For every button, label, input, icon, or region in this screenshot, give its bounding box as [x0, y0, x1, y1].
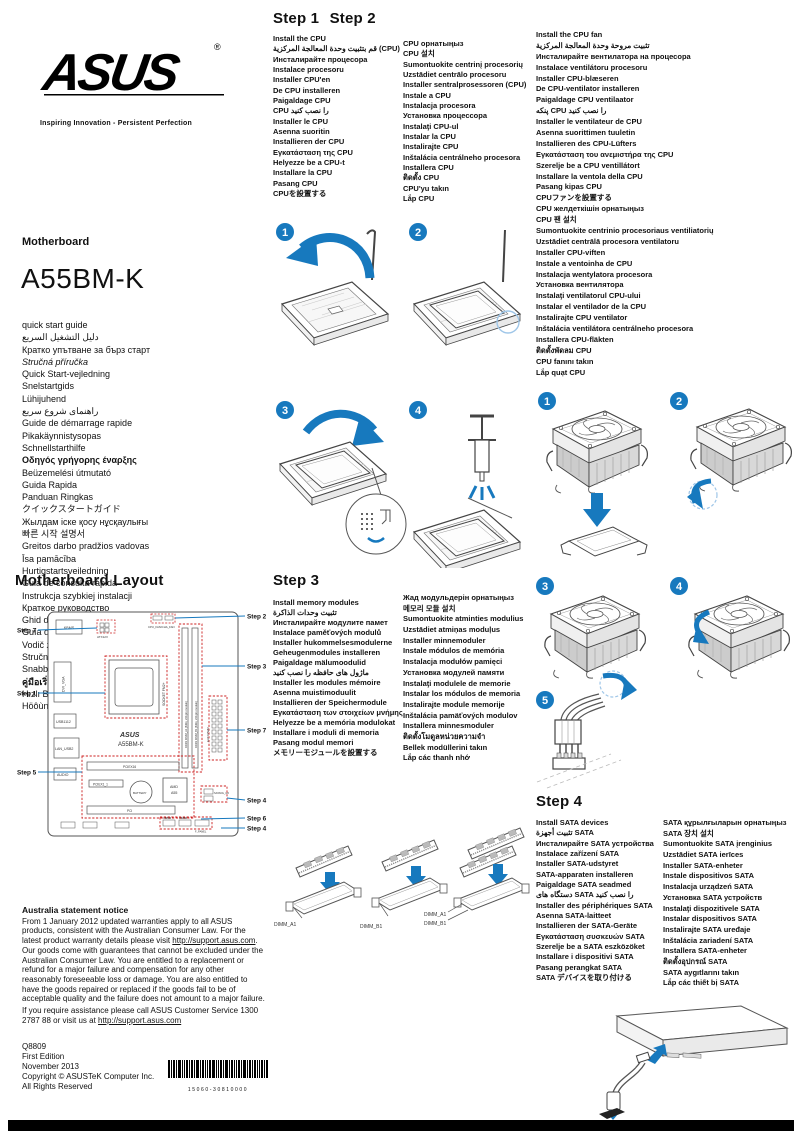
text-line: Asenna suorittimen tuuletin: [536, 128, 714, 139]
text-line: Установка вентилятора: [536, 280, 714, 291]
text-line: Asenna muistimoduulit: [273, 688, 403, 698]
text-line: CPU желдеткішін орнатыңыз: [536, 204, 714, 215]
svg-text:SATA6G_1/2: SATA6G_1/2: [214, 791, 229, 795]
text-line: Pasang perangkat SATA: [536, 963, 654, 973]
sata-install-list-1: Install SATA devicesتثبيت أجهزة SATAИнст…: [536, 818, 654, 984]
text-line: Schnellstarthilfe: [22, 442, 155, 454]
svg-text:SOCKET FM2+: SOCKET FM2+: [162, 682, 166, 706]
text-line: Lắp CPU: [403, 194, 526, 204]
text-line: Installieren der SATA-Geräte: [536, 921, 654, 931]
text-line: Installare la ventola della CPU: [536, 172, 714, 183]
cpu-install-list-1: Install the CPUقم بتثبيت وحدة المعالجة ا…: [273, 34, 400, 200]
edition: First Edition: [22, 1052, 154, 1062]
mb-callout: Step 7: [17, 628, 37, 635]
dimm-label: DIMM_B1: [360, 924, 382, 930]
text-line: Inštalácia centrálneho procesora: [403, 153, 526, 163]
doc-number: Q8809: [22, 1042, 154, 1052]
dimm-label: DIMM_B1: [424, 921, 446, 927]
edition-block: Q8809 First Edition November 2013 Copyri…: [22, 1042, 154, 1092]
text-line: ติดตั้ง CPU: [403, 173, 526, 183]
text-line: Кратко упътване за бърз старт: [22, 344, 155, 356]
text-line: Stručná příručka: [22, 356, 155, 368]
text-line: تثبيت وحدات الذاكرة: [273, 608, 403, 618]
text-line: Installieren des CPU-Lüfters: [536, 139, 714, 150]
barcode-number: 15060-30810000: [168, 1087, 268, 1093]
text-line: Instale dispositivos SATA: [663, 871, 786, 882]
text-line: Installer le ventilateur de CPU: [536, 117, 714, 128]
svg-text:DDR3 DIMM_A1 (64bit, 240-pin m: DDR3 DIMM_A1 (64bit, 240-pin module): [184, 701, 188, 748]
text-line: Lắp các thanh nhớ: [403, 753, 523, 764]
text-line: CPU 설치: [403, 49, 526, 59]
text-line: Paigaldage mälumoodulid: [273, 658, 403, 668]
text-line: Жылдам іске қосу нұсқаулығы: [22, 516, 155, 528]
sata-install-diagram: [555, 1002, 800, 1125]
text-line: Installer CPU-viften: [536, 248, 714, 259]
text-line: Install memory modules: [273, 598, 403, 608]
support-link: http://support.asus.com: [98, 1016, 181, 1025]
text-line: Uzstādiet SATA ierīces: [663, 850, 786, 861]
text-line: 메모리 모듈 설치: [403, 604, 523, 615]
support-link: http://support.asus.com: [172, 936, 255, 945]
text-line: SATA aygıtlarını takın: [663, 968, 786, 979]
text-line: Installare i moduli di memoria: [273, 728, 403, 738]
svg-text:ASUS: ASUS: [37, 44, 184, 102]
svg-text:USB56: USB56: [179, 816, 188, 820]
text-line: Paigaldage SATA seadmed: [536, 880, 654, 890]
text-line: CPUを設置する: [273, 189, 400, 199]
mb-callout: Step 6: [247, 816, 267, 823]
svg-text:AUDIO: AUDIO: [57, 773, 69, 777]
text-line: Installer CPU-blæseren: [536, 74, 714, 85]
text-line: ماژول های حافظه را نصب کنید: [273, 668, 403, 678]
bottom-bar: [8, 1120, 794, 1131]
text-line: Sumontuokite SATA įrenginius: [663, 839, 786, 850]
text-line: Paigaldage CPU ventilaator: [536, 95, 714, 106]
text-line: Inštalácia ventilátora centrálneho proce…: [536, 324, 714, 335]
text-line: メモリーモジュールを設置する: [273, 748, 403, 758]
text-line: Installer SATA-udstyret: [536, 859, 654, 869]
svg-text:A55BM-K: A55BM-K: [118, 742, 144, 748]
text-line: Installare la CPU: [273, 168, 400, 178]
svg-text:A55: A55: [171, 791, 177, 795]
mb-callout: Step 3: [247, 664, 267, 671]
text-line: Установка SATA устройств: [663, 893, 786, 904]
step3-heading: Step 3: [273, 572, 319, 589]
text-line: دستگاه های SATA را نصب کنید: [536, 890, 654, 900]
svg-text:PCIEX16: PCIEX16: [123, 765, 136, 769]
memory-install-list-2: Жад модульдерін орнатыңыз메모리 모듈 설치Sumont…: [403, 593, 523, 764]
text-line: Guide de démarrage rapide: [22, 417, 155, 429]
cpu-fan-diagram-b: 3 4 5: [533, 572, 800, 795]
text-line: Instalacja procesora: [403, 101, 526, 111]
fan-step-badge: 5: [542, 695, 548, 707]
text-line: ติดตั้งอุปกรณ์ SATA: [663, 957, 786, 968]
text-line: Panduan Ringkas: [22, 491, 155, 503]
text-line: Uzstādiet centrālā procesora ventilatoru: [536, 237, 714, 248]
text-line: Install the CPU fan: [536, 30, 714, 41]
text-line: Instalar dispositivos SATA: [663, 914, 786, 925]
australia-notice-body2: If you require assistance please call AS…: [22, 1006, 265, 1025]
text-line: ติดตั้งโมดูลหน่วยความจำ: [403, 732, 523, 743]
cpu-install-list-2: CPU орнатыңызCPU 설치Sumontuokite centrinį…: [403, 39, 526, 205]
cpu-step-badge: 4: [415, 405, 422, 417]
text-line: Instalace paměťových modulů: [273, 628, 403, 638]
text-line: Installare i dispositivi SATA: [536, 952, 654, 962]
text-line: Installieren der CPU: [273, 137, 400, 147]
cpu-install-diagram: 1 2 3: [272, 218, 528, 573]
text-line: Инсталирайте вентилатора на процесора: [536, 52, 714, 63]
svg-text:DVI_VGA: DVI_VGA: [62, 676, 66, 692]
svg-text:ASUS: ASUS: [119, 732, 140, 739]
text-line: Helyezze be a memória modulokat: [273, 718, 403, 728]
svg-text:PCI: PCI: [127, 809, 132, 813]
text-line: ติดตั้งพัดลม CPU: [536, 346, 714, 357]
retention-bracket: [561, 527, 647, 556]
text-line: Pasang modul memori: [273, 738, 403, 748]
text-line: Instalacja modułów pamięci: [403, 657, 523, 668]
text-line: Installer minnemoduler: [403, 636, 523, 647]
text-line: Instalar el ventilador de la CPU: [536, 302, 714, 313]
text-line: SATA 장치 설치: [663, 829, 786, 840]
text-line: Helyezze be a CPU-t: [273, 158, 400, 168]
cpu-fan-diagram-a: 1 2: [533, 385, 800, 576]
text-line: Bellek modüllerini takın: [403, 743, 523, 754]
text-line: CPU'yu takın: [403, 184, 526, 194]
text-line: Szerelje be a CPU ventillátort: [536, 161, 714, 172]
svg-text:LAN_USB2: LAN_USB2: [55, 747, 73, 751]
text-line: تثبيت أجهزة SATA: [536, 828, 654, 838]
thermal-paste-syringe: [468, 416, 496, 500]
text-line: Uzstādiet centrālo procesoru: [403, 70, 526, 80]
text-line: Installer hukommelsesmodulerne: [273, 638, 403, 648]
text-line: Установка модулей памяти: [403, 668, 523, 679]
text-line: تثبيت مروحة وحدة المعالجة المركزية: [536, 41, 714, 52]
text-line: Instalar la CPU: [403, 132, 526, 142]
text-line: Instalacja wentylatora procesora: [536, 270, 714, 281]
text-line: Жад модульдерін орнатыңыз: [403, 593, 523, 604]
dimm-label: DIMM_A1: [424, 912, 446, 918]
text-line: Lühijuhend: [22, 393, 155, 405]
text-line: Installera SATA-enheter: [663, 946, 786, 957]
svg-text:EATXPWR: EATXPWR: [206, 727, 210, 742]
text-line: Uzstādiet atmiņas moduļus: [403, 625, 523, 636]
text-line: Εγκατάσταση του ανεμιστήρα της CPU: [536, 150, 714, 161]
step12-heading: Step 1 Step 2: [273, 10, 376, 27]
cpu-fan-install-list: Install the CPU fanتثبيت مروحة وحدة المع…: [536, 30, 714, 379]
text-line: قم بتثبيت وحدة المعالجة المركزية (CPU): [273, 44, 400, 54]
text-line: Installer des périphériques SATA: [536, 901, 654, 911]
svg-text:CPU_FAN/CHA_FAN: CPU_FAN/CHA_FAN: [148, 625, 175, 629]
text-line: Installieren der Speichermodule: [273, 698, 403, 708]
model-name: A55BM-K: [21, 263, 144, 295]
text-line: Īsa pamācība: [22, 553, 155, 565]
text-line: راهنمای شروع سریع: [22, 405, 155, 417]
svg-text:F_PANEL: F_PANEL: [195, 830, 207, 834]
text-line: Instalace ventilátoru procesoru: [536, 63, 714, 74]
step2-label: Step 2: [330, 10, 376, 27]
text-line: Instalirajte CPU ventilator: [536, 313, 714, 324]
asus-logo: ASUS ®: [36, 34, 232, 111]
text-line: CPUファンを設置する: [536, 193, 714, 204]
text-line: Εγκατάσταση συσκευών SATA: [536, 932, 654, 942]
quick-start-guide-page: ASUS ® Inspiring Innovation - Persistent…: [0, 0, 802, 1134]
text-line: CPU fanını takın: [536, 357, 714, 368]
text-line: Installer le CPU: [273, 117, 400, 127]
text-line: Geheugenmodules installeren: [273, 648, 403, 658]
text-line: Instalace procesoru: [273, 65, 400, 75]
text-line: Instalacja urządzeń SATA: [663, 882, 786, 893]
text-line: CPU орнатыңыз: [403, 39, 526, 49]
mb-callout: Step 4: [247, 826, 267, 833]
text-line: Asenna SATA-laitteet: [536, 911, 654, 921]
text-line: پنکه CPU را نصب کنید: [536, 106, 714, 117]
mb-callout: Step 4: [247, 798, 267, 805]
fan-connector: [537, 694, 621, 788]
text-line: Inštalácia pamäťových modulov: [403, 711, 523, 722]
mb-callout: Step 5: [17, 770, 37, 777]
australia-notice-body: From 1 January 2012 updated warranties a…: [22, 917, 265, 1004]
fan-step-badge: 1: [544, 396, 550, 408]
text-line: quick start guide: [22, 319, 155, 331]
text-line: Инсталирайте процесора: [273, 55, 400, 65]
text-line: Inštalácia zariadení SATA: [663, 936, 786, 947]
svg-text:USB1112: USB1112: [56, 720, 71, 724]
svg-text:BATTERY: BATTERY: [133, 791, 147, 795]
cpu-step-badge: 1: [282, 227, 288, 239]
text-line: CPU را نصب كنيد: [273, 106, 400, 116]
fan-step-badge: 2: [676, 396, 682, 408]
text-line: Instalar los módulos de memoria: [403, 689, 523, 700]
text-line: Instalaţi ventilatorul CPU-ului: [536, 291, 714, 302]
text-line: Pikakäynnistysopas: [22, 430, 155, 442]
text-line: Quick Start-vejledning: [22, 368, 155, 380]
memory-install-diagram: DIMM_A1 DIMM_B1 DIMM_A1 DIMM_B1: [272, 806, 530, 961]
text-line: Installera CPU-fläkten: [536, 335, 714, 346]
text-line: Instale a CPU: [403, 91, 526, 101]
text-line: Installer SATA-enheter: [663, 861, 786, 872]
text-line: Paigaldage CPU: [273, 96, 400, 106]
cpu-step-badge: 2: [415, 227, 421, 239]
australia-notice: Australia statement notice From 1 Januar…: [22, 906, 265, 1025]
dimm-label: DIMM_A1: [274, 922, 296, 928]
step4-heading: Step 4: [536, 793, 582, 810]
text-line: Sumontuokite centrinio procesoriaus vent…: [536, 226, 714, 237]
text-line: Install SATA devices: [536, 818, 654, 828]
text-line: Instalaţi modulele de memorie: [403, 679, 523, 690]
mb-callout: Step 1: [17, 691, 37, 698]
text-line: دليل التشغيل السريع: [22, 331, 155, 343]
brand-tagline: Inspiring Innovation - Persistent Perfec…: [40, 120, 192, 127]
text-line: クイックスタートガイド: [22, 503, 155, 515]
barcode: 15060-30810000: [168, 1060, 268, 1093]
step1-label: Step 1: [273, 10, 319, 27]
text-line: SATA құрылғыларын орнатыңыз: [663, 818, 786, 829]
text-line: Lắp quạt CPU: [536, 368, 714, 379]
text-line: Installer les modules mémoire: [273, 678, 403, 688]
text-line: Beüzemelési útmutató: [22, 467, 155, 479]
text-line: Installer CPU'en: [273, 75, 400, 85]
text-line: Greitos darbo pradžios vadovas: [22, 540, 155, 552]
text-line: Guida Rapida: [22, 479, 155, 491]
text-line: Asenna suoritin: [273, 127, 400, 137]
svg-text:USB34: USB34: [163, 816, 172, 820]
svg-text:AMD: AMD: [170, 785, 178, 789]
text-line: Инсталирайте модулите памет: [273, 618, 403, 628]
text-line: 빠른 시작 설명서: [22, 528, 155, 540]
text-line: Instalaţi dispozitivele SATA: [663, 904, 786, 915]
text-line: CPU 팬 설치: [536, 215, 714, 226]
mb-callout: Step 7: [247, 728, 267, 735]
text-line: Lắp các thiết bị SATA: [663, 978, 786, 989]
text-line: Инсталирайте SATA устройства: [536, 839, 654, 849]
fan-step-badge: 4: [676, 581, 683, 593]
text-line: Szerelje be a SATA eszközöket: [536, 942, 654, 952]
text-line: Snelstartgids: [22, 380, 155, 392]
sata-install-list-2: SATA құрылғыларын орнатыңызSATA 장치 설치Sum…: [663, 818, 786, 989]
product-type-label: Motherboard: [22, 236, 89, 248]
text-line: Instalace zařízení SATA: [536, 849, 654, 859]
text-line: Οδηγός γρήγορης έναρξης: [22, 454, 155, 466]
text-line: Instalirajte CPU: [403, 142, 526, 152]
australia-notice-heading: Australia statement notice: [22, 906, 265, 916]
fan-step-badge: 3: [542, 581, 548, 593]
text-line: Pasang CPU: [273, 179, 400, 189]
text-line: Εγκατάσταση της CPU: [273, 148, 400, 158]
mb-callout: Step 2: [247, 614, 267, 621]
memory-install-list-1: Install memory modulesتثبيت وحدات الذاكر…: [273, 598, 403, 758]
text-line: Instale módulos de memória: [403, 646, 523, 657]
text-line: Sumontuokite atminties modulius: [403, 614, 523, 625]
motherboard-diagram: KBMS DVI_VGA USB1112 LAN_USB2 AUDIO ATX1…: [15, 598, 270, 855]
text-line: De CPU installeren: [273, 86, 400, 96]
text-line: De CPU-ventilator installeren: [536, 84, 714, 95]
svg-text:PCIEX1_1: PCIEX1_1: [93, 783, 108, 787]
text-line: Instalirajte module memorije: [403, 700, 523, 711]
text-line: Εγκατάσταση των στοιχείων μνήμης: [273, 708, 403, 718]
rights: All Rights Reserved: [22, 1082, 154, 1092]
text-line: Instalaţi CPU-ul: [403, 122, 526, 132]
text-line: SATA-apparaten installeren: [536, 870, 654, 880]
motherboard-layout-heading: Motherboard Layout: [15, 572, 164, 589]
text-line: Instale a ventoinha de CPU: [536, 259, 714, 270]
cpu-step-badge: 3: [282, 405, 288, 417]
text-line: Sumontuokite centrinį procesorių: [403, 60, 526, 70]
text-line: Установка процессора: [403, 111, 526, 121]
copyright: Copyright © ASUSTeK Computer Inc.: [22, 1072, 154, 1082]
text-line: SATA デバイスを取り付ける: [536, 973, 654, 983]
svg-text:®: ®: [214, 42, 221, 52]
svg-text:DDR3 DIMM_B1 (64bit, 240-pin m: DDR3 DIMM_B1 (64bit, 240-pin module): [194, 701, 198, 748]
svg-text:ATX12V: ATX12V: [97, 635, 108, 639]
edition-date: November 2013: [22, 1062, 154, 1072]
text-line: Instalirajte SATA uređaje: [663, 925, 786, 936]
text-line: Installera CPU: [403, 163, 526, 173]
text-line: Installer sentralprosessoren (CPU): [403, 80, 526, 90]
text-line: Pasang kipas CPU: [536, 182, 714, 193]
text-line: Installera minnesmoduler: [403, 721, 523, 732]
text-line: Install the CPU: [273, 34, 400, 44]
